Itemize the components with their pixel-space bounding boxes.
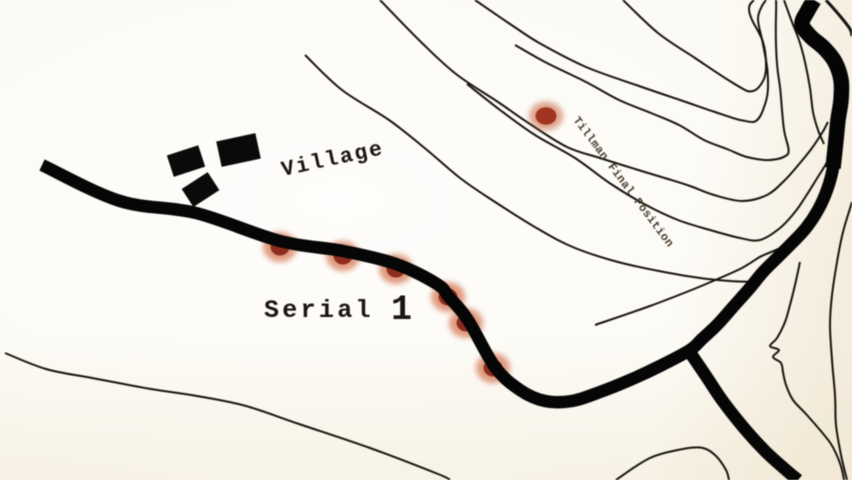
svg-text:1: 1 (391, 290, 412, 330)
svg-text:Serial: Serial (264, 296, 374, 325)
svg-text:Village: Village (279, 137, 386, 183)
svg-text:Tillman Final Position: Tillman Final Position (570, 115, 676, 251)
